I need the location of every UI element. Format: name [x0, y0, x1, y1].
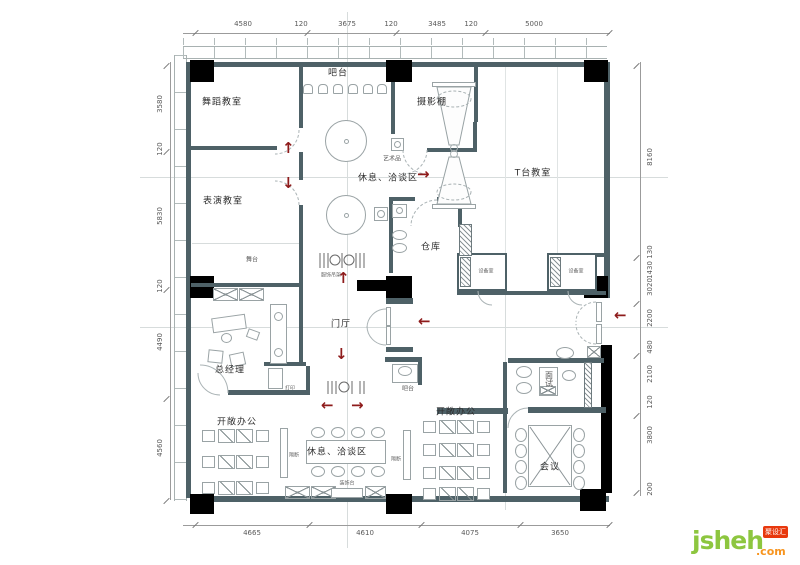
- door-arc-equip-b: [568, 291, 582, 305]
- flow-arrow-left: ←: [321, 398, 334, 413]
- flow-arrow-left: ←: [614, 308, 627, 323]
- dim-top: 120: [464, 20, 477, 28]
- flow-arrow-up: ↑: [282, 141, 295, 156]
- clothes-rack-ring: [330, 255, 340, 265]
- dim-right: 2100: [646, 365, 654, 383]
- door-arc-equip-a: [478, 291, 492, 305]
- door-arc-foyer1: [367, 309, 386, 328]
- logo-tld: .com: [756, 545, 786, 558]
- dim-top: 5000: [525, 20, 543, 28]
- dim-line-right: [640, 62, 641, 496]
- label-meeting: 会议: [540, 460, 560, 473]
- dim-right: 3020: [646, 278, 654, 296]
- label-art-piece: 艺术品: [383, 154, 401, 163]
- flow-arrow-down: ↓: [282, 176, 295, 191]
- dim-bottom: 4610: [356, 529, 374, 537]
- label-rest-mid: 休息、洽谈区: [358, 171, 418, 184]
- dim-right: 480: [646, 340, 654, 353]
- dim-bottom: 4075: [461, 529, 479, 537]
- plan-linework: [0, 0, 800, 565]
- label-office-right: 开敞办公: [436, 405, 476, 418]
- runway-fan-lower: [437, 157, 471, 204]
- label-photo-studio: 摄影棚: [417, 95, 447, 108]
- label-screen-left: 隔断: [289, 452, 299, 459]
- dim-left: 5830: [156, 207, 164, 225]
- door-arc-entrance2: [576, 324, 596, 344]
- dim-left: 120: [156, 279, 164, 292]
- dim-left: 3580: [156, 95, 164, 113]
- dim-right: 120: [646, 395, 654, 408]
- floor-plan-canvas: ↑ ↓ → ↑ ↓ ← ← ← → 吧台 舞蹈教室 摄影棚 艺术品 休息、洽谈区…: [0, 0, 800, 565]
- label-bar-top: 吧台: [328, 66, 348, 79]
- label-rest-bottom: 休息、洽谈区: [307, 445, 367, 458]
- label-warehouse: 仓库: [421, 240, 441, 253]
- dim-bottom: 3650: [551, 529, 569, 537]
- flow-arrow-right: →: [417, 167, 430, 182]
- dim-line-bottom: [183, 525, 610, 526]
- label-bar-small: 吧台: [402, 384, 414, 393]
- dim-right: 3800: [646, 426, 654, 444]
- meeting-table-cross: [530, 427, 570, 485]
- label-t-stage: T台教室: [515, 166, 552, 179]
- flow-arrow-right: →: [351, 398, 364, 413]
- dim-right: 1430: [646, 261, 654, 279]
- label-rack: 服饰吊架: [321, 272, 341, 279]
- dim-top: 3485: [428, 20, 446, 28]
- label-equip-b: 设备室: [568, 268, 583, 275]
- label-office-left: 开敞办公: [217, 415, 257, 428]
- dim-left: 4560: [156, 439, 164, 457]
- dim-right: 200: [646, 482, 654, 495]
- label-dance: 舞蹈教室: [202, 95, 242, 108]
- jsheh-logo: jsheh 聚设汇 .com: [692, 526, 798, 562]
- flow-arrow-down: ↓: [335, 347, 348, 362]
- label-perform: 表演教室: [203, 194, 243, 207]
- door-arc-gm: [198, 373, 220, 395]
- dim-top: 3675: [338, 20, 356, 28]
- label-console: 装饰台: [339, 480, 354, 487]
- label-equip-a: 设备室: [478, 268, 493, 275]
- clothes-rack-ring: [344, 255, 354, 265]
- label-interview: 面试: [544, 371, 555, 387]
- dim-right: 8160: [646, 148, 654, 166]
- dim-top: 4580: [234, 20, 252, 28]
- clothes-rack-ring: [339, 382, 349, 392]
- door-arc-warehouse: [411, 200, 437, 226]
- dim-left: 4490: [156, 333, 164, 351]
- door-arc-foyer2: [367, 326, 386, 345]
- dim-right: 2200: [646, 309, 654, 327]
- dim-right: 130: [646, 245, 654, 258]
- door-arc-meeting-zone: [508, 408, 528, 428]
- label-stage: 舞台: [246, 255, 258, 264]
- label-print: 打印: [285, 385, 295, 392]
- clothes-rack: [320, 253, 364, 268]
- dim-left: 120: [156, 142, 164, 155]
- dim-bottom: 4665: [243, 529, 261, 537]
- logo-wordmark: jsheh: [692, 526, 763, 555]
- label-gm: 总经理: [215, 363, 245, 376]
- label-screen-right: 隔断: [391, 456, 401, 463]
- dim-top: 120: [294, 20, 307, 28]
- dim-top: 120: [384, 20, 397, 28]
- dim-line-left: [170, 62, 171, 500]
- flow-arrow-left: ←: [418, 314, 431, 329]
- label-foyer: 门厅: [331, 317, 351, 330]
- logo-badge: 聚设汇: [763, 526, 788, 538]
